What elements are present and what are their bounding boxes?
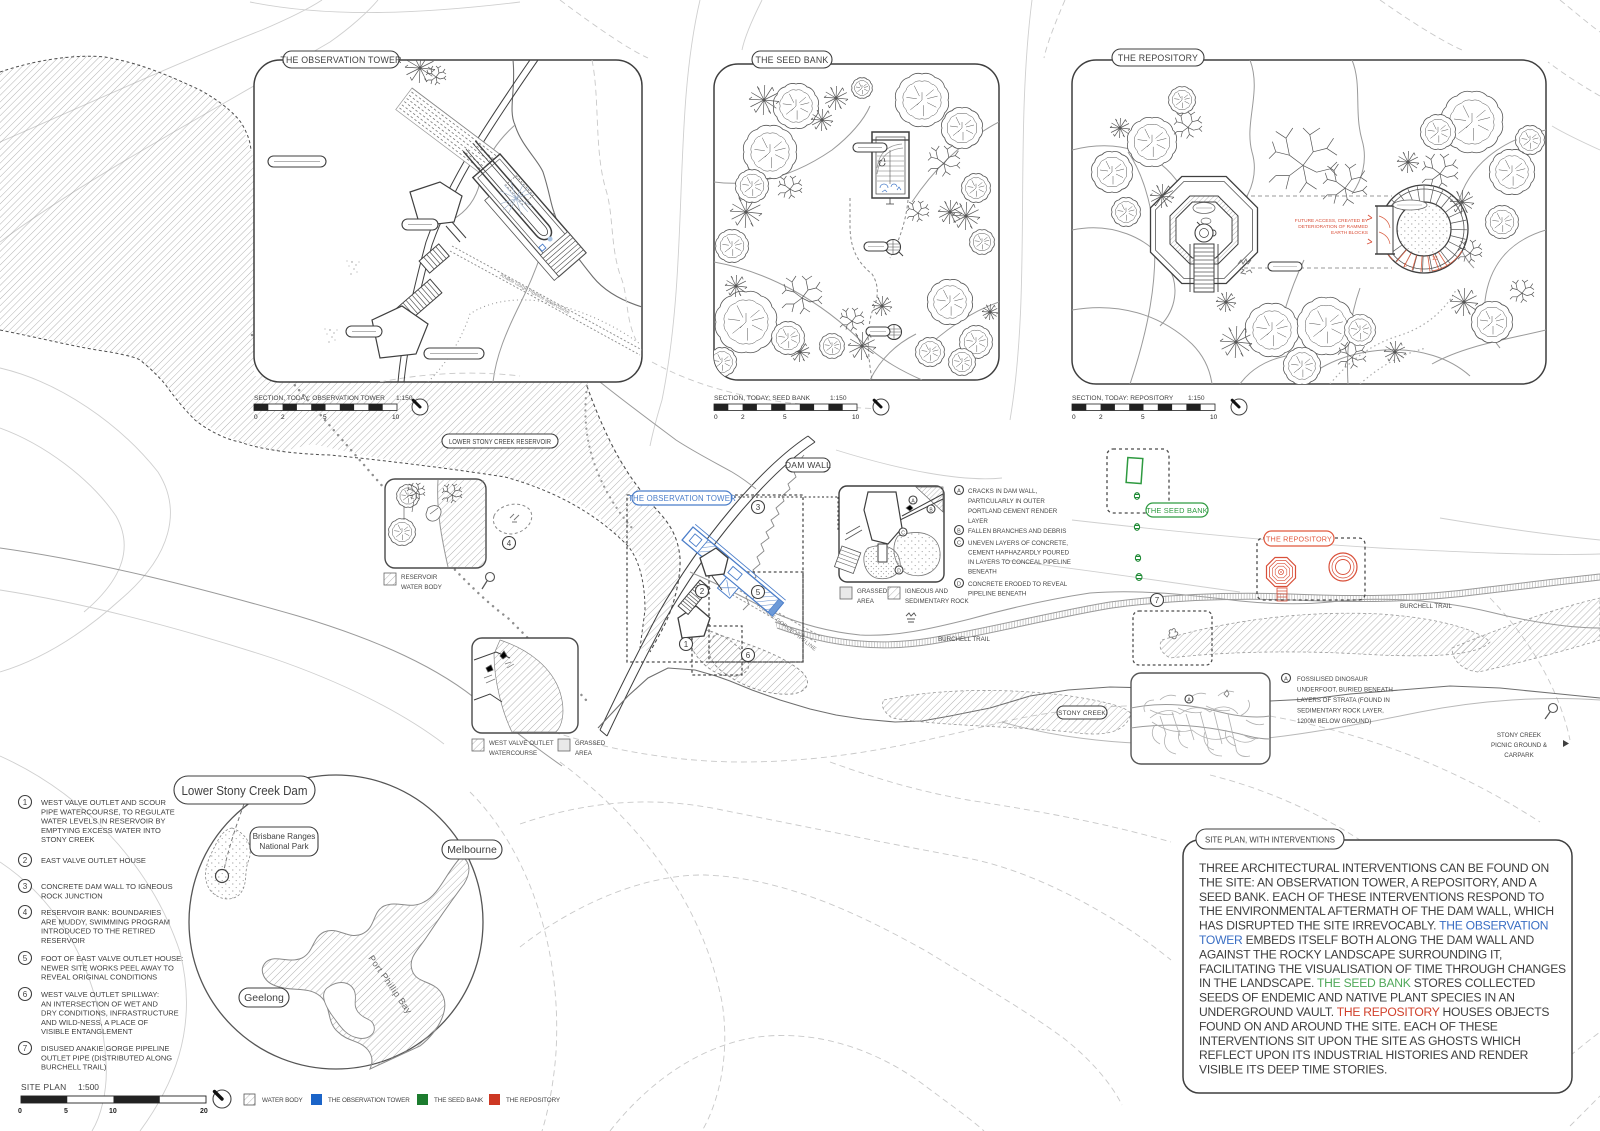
svg-text:PIPELINE BENEATH: PIPELINE BENEATH: [968, 591, 1026, 598]
svg-text:EAST VALVE OUTLET HOUSE: EAST VALVE OUTLET HOUSE: [41, 856, 146, 865]
svg-text:WATER BODY: WATER BODY: [401, 584, 442, 591]
svg-text:UNEVEN LAYERS OF CONCRETE,: UNEVEN LAYERS OF CONCRETE,: [968, 540, 1068, 547]
svg-text:1: 1: [684, 640, 689, 649]
svg-text:2: 2: [700, 587, 705, 596]
svg-text:LAYER: LAYER: [968, 518, 988, 525]
svg-text:20: 20: [200, 1108, 208, 1115]
svg-text:THREE ARCHITECTURAL INTERVENTI: THREE ARCHITECTURAL INTERVENTIONS CAN BE…: [1199, 861, 1549, 875]
svg-text:National Park: National Park: [259, 842, 309, 851]
svg-text:THE OBSERVATION TOWER: THE OBSERVATION TOWER: [628, 494, 736, 503]
svg-text:5: 5: [783, 414, 787, 421]
svg-text:TOWER EMBEDS ITSELF BOTH ALON: TOWER EMBEDS ITSELF BOTH ALONG THE DAM W…: [1199, 933, 1535, 947]
svg-text:GRASSED: GRASSED: [575, 740, 606, 747]
svg-text:THE REPOSITORY: THE REPOSITORY: [1266, 535, 1332, 544]
svg-text:5: 5: [23, 954, 28, 963]
svg-text:GRASSED: GRASSED: [857, 588, 888, 595]
svg-text:Melbourne: Melbourne: [447, 844, 497, 856]
svg-text:A: A: [1284, 677, 1288, 683]
svg-text:10: 10: [1210, 414, 1218, 421]
svg-text:FOOT OF EAST VALVE OUTLET HOUS: FOOT OF EAST VALVE OUTLET HOUSE:: [41, 954, 183, 963]
svg-text:AND WILD-NESS, A PLACE OF: AND WILD-NESS, A PLACE OF: [41, 1018, 149, 1027]
svg-text:REFLECT UPON ITS INDUSTRIAL HI: REFLECT UPON ITS INDUSTRIAL HISTORIES AN…: [1199, 1048, 1529, 1062]
svg-text:FACILITATING THE VISUALISATION: FACILITATING THE VISUALISATION OF TIME T…: [1199, 962, 1566, 976]
svg-text:C: C: [957, 541, 961, 547]
svg-text:5: 5: [323, 414, 327, 421]
svg-text:BENEATH: BENEATH: [968, 569, 997, 576]
svg-text:AN INTERSECTION OF WET AND: AN INTERSECTION OF WET AND: [41, 999, 159, 1008]
svg-text:DAM WALL: DAM WALL: [785, 460, 831, 470]
svg-text:PICNIC GROUND &: PICNIC GROUND &: [1491, 742, 1548, 749]
svg-text:3: 3: [23, 882, 28, 891]
svg-text:WEST VALVE OUTLET SPILLWAY:: WEST VALVE OUTLET SPILLWAY:: [41, 990, 159, 999]
svg-text:UNDERFOOT, BURIED BENEATH: UNDERFOOT, BURIED BENEATH: [1297, 687, 1393, 694]
svg-text:5: 5: [1141, 414, 1145, 421]
svg-text:5: 5: [756, 588, 761, 597]
svg-text:SECTION, TODAY: OBSERVATION TO: SECTION, TODAY: OBSERVATION TOWER: [254, 395, 385, 402]
svg-text:2: 2: [1099, 414, 1103, 421]
svg-text:1:150: 1:150: [830, 395, 847, 402]
svg-text:BURCHELL TRAIL: BURCHELL TRAIL: [938, 636, 990, 643]
svg-text:REVEAL ORIGINAL CONDITIONS: REVEAL ORIGINAL CONDITIONS: [41, 973, 157, 982]
svg-text:0: 0: [254, 414, 258, 421]
svg-text:PARTICULARLY IN OUTER: PARTICULARLY IN OUTER: [968, 498, 1045, 505]
svg-text:AREA: AREA: [575, 750, 593, 757]
svg-text:BURCHELL TRAIL: BURCHELL TRAIL: [1400, 603, 1452, 610]
svg-text:BURCHELL TRAIL): BURCHELL TRAIL): [41, 1063, 107, 1072]
svg-text:SECTION, TODAY: SEED BANK: SECTION, TODAY: SEED BANK: [714, 395, 811, 402]
svg-text:5: 5: [64, 1108, 68, 1115]
svg-text:10: 10: [392, 414, 400, 421]
svg-text:DISUSED ANAKIE GORGE PIPELINE: DISUSED ANAKIE GORGE PIPELINE: [41, 1044, 169, 1053]
svg-text:RESERVOIR: RESERVOIR: [401, 574, 438, 581]
svg-text:SEDIMENTARY ROCK LAYER,: SEDIMENTARY ROCK LAYER,: [1297, 708, 1384, 715]
svg-text:6: 6: [23, 990, 28, 999]
svg-text:B: B: [957, 529, 961, 535]
svg-text:Geelong: Geelong: [244, 992, 284, 1004]
svg-text:6: 6: [746, 651, 751, 660]
svg-text:EMPTYING EXCESS WATER INTO: EMPTYING EXCESS WATER INTO: [41, 826, 161, 835]
svg-text:0: 0: [18, 1108, 22, 1115]
svg-text:10: 10: [109, 1108, 117, 1115]
svg-text:UNDERGROUND VAULT. THE REPOSIT: UNDERGROUND VAULT. THE REPOSITORY HOUSES…: [1199, 1005, 1549, 1019]
svg-text:NEWER SITE WORKS PEEL AWAY TO: NEWER SITE WORKS PEEL AWAY TO: [41, 963, 174, 972]
svg-text:CONCRETE DAM WALL TO IGNEOUS: CONCRETE DAM WALL TO IGNEOUS: [41, 882, 173, 891]
svg-text:LAYERS OF STRATA (FOUND IN: LAYERS OF STRATA (FOUND IN: [1297, 697, 1390, 704]
svg-text:IN THE LANDSCAPE. THE SEED BAN: IN THE LANDSCAPE. THE SEED BANK STORES C…: [1199, 976, 1536, 990]
svg-text:IN LAYERS TO CONCEAL PIPELINE: IN LAYERS TO CONCEAL PIPELINE: [968, 559, 1071, 566]
svg-text:3: 3: [756, 503, 761, 512]
svg-text:LOWER STONY CREEK RESERVOIR: LOWER STONY CREEK RESERVOIR: [449, 439, 551, 446]
svg-text:THE OBSERVATION TOWER: THE OBSERVATION TOWER: [280, 55, 401, 65]
svg-text:THE SEED BANK: THE SEED BANK: [434, 1097, 484, 1104]
svg-text:A: A: [957, 489, 961, 495]
svg-text:0: 0: [1072, 414, 1076, 421]
svg-text:1200M BELOW GROUND): 1200M BELOW GROUND): [1297, 718, 1371, 725]
svg-text:STONY CREEK: STONY CREEK: [41, 835, 95, 844]
svg-text:Lower Stony Creek Dam: Lower Stony Creek Dam: [182, 783, 308, 798]
svg-text:STONY CREEK: STONY CREEK: [1497, 732, 1542, 739]
svg-text:D: D: [957, 582, 961, 588]
svg-text:7: 7: [23, 1044, 28, 1053]
svg-text:PORTLAND CEMENT RENDER: PORTLAND CEMENT RENDER: [968, 508, 1058, 515]
svg-text:WATER BODY: WATER BODY: [262, 1097, 304, 1104]
svg-text:FALLEN BRANCHES AND DEBRIS: FALLEN BRANCHES AND DEBRIS: [968, 528, 1066, 535]
svg-text:SEED BANK. EACH OF THESE INTER: SEED BANK. EACH OF THESE INTERVENTIONS R…: [1199, 890, 1544, 904]
svg-text:THE ENVIRONMENTAL AFTERMATH OF: THE ENVIRONMENTAL AFTERMATH OF THE DAM W…: [1199, 904, 1554, 918]
svg-text:SEEDS OF ENDEMIC AND NATIVE PL: SEEDS OF ENDEMIC AND NATIVE PLANT SPECIE…: [1199, 991, 1515, 1005]
svg-text:WEST VALVE OUTLET AND SCOUR: WEST VALVE OUTLET AND SCOUR: [41, 798, 166, 807]
svg-text:VISIBLE ITS DEEP TIME STORIES.: VISIBLE ITS DEEP TIME STORIES.: [1199, 1063, 1387, 1077]
svg-text:C: C: [901, 531, 905, 537]
svg-text:FOSSILISED DINOSAUR: FOSSILISED DINOSAUR: [1297, 676, 1368, 683]
svg-text:7: 7: [1155, 596, 1160, 605]
svg-text:1: 1: [23, 798, 28, 807]
svg-text:DETERIORATION OF RAMMED: DETERIORATION OF RAMMED: [1298, 224, 1368, 230]
svg-text:HAS DISRUPTED THE SITE IRREVOC: HAS DISRUPTED THE SITE IRREVOCABLY. THE …: [1199, 919, 1548, 933]
svg-text:1:500: 1:500: [78, 1082, 99, 1092]
svg-text:STONY CREEK: STONY CREEK: [1058, 710, 1106, 717]
svg-text:PIPE WATERCOURSE, TO REGULATE: PIPE WATERCOURSE, TO REGULATE: [41, 807, 175, 816]
svg-text:OUTLET PIPE (DISTRIBUTED ALONG: OUTLET PIPE (DISTRIBUTED ALONG: [41, 1053, 172, 1062]
svg-text:10: 10: [852, 414, 860, 421]
svg-text:INTERVENTIONS SIT UPON THE SIT: INTERVENTIONS SIT UPON THE SITE AS GHOST…: [1199, 1034, 1521, 1048]
svg-text:SECTION, TODAY: REPOSITORY: SECTION, TODAY: REPOSITORY: [1072, 395, 1174, 402]
svg-text:FUTURE ACCESS, CREATED BY: FUTURE ACCESS, CREATED BY: [1295, 218, 1369, 224]
svg-text:2: 2: [741, 414, 745, 421]
svg-text:AGAINST THE ROCKY LANDSCAPE SU: AGAINST THE ROCKY LANDSCAPE SURROUNDING …: [1199, 947, 1502, 961]
svg-text:Brisbane Ranges: Brisbane Ranges: [253, 832, 316, 841]
svg-text:SITE PLAN, WITH INTERVENTIONS: SITE PLAN, WITH INTERVENTIONS: [1205, 835, 1335, 845]
svg-text:THE SEED BANK: THE SEED BANK: [756, 55, 829, 65]
svg-text:EARTH BLOCKS: EARTH BLOCKS: [1331, 230, 1368, 236]
svg-text:DRY CONDITIONS, INFRASTRUCTURE: DRY CONDITIONS, INFRASTRUCTURE: [41, 1009, 179, 1018]
svg-text:RESERVOIR: RESERVOIR: [41, 936, 86, 945]
svg-text:1:150: 1:150: [1188, 395, 1205, 402]
svg-text:ROCK JUNCTION: ROCK JUNCTION: [41, 891, 103, 900]
svg-text:0: 0: [714, 414, 718, 421]
svg-text:INTRODUCED TO THE RETIRED: INTRODUCED TO THE RETIRED: [41, 927, 156, 936]
svg-text:WATER LEVELS IN RESERVOIR BY: WATER LEVELS IN RESERVOIR BY: [41, 817, 165, 826]
svg-text:WEST VALVE OUTLET: WEST VALVE OUTLET: [489, 740, 554, 747]
svg-text:1:150: 1:150: [396, 395, 413, 402]
svg-text:4: 4: [23, 908, 28, 917]
svg-text:SEDIMENTARY ROCK: SEDIMENTARY ROCK: [905, 598, 969, 605]
svg-text:THE OBSERVATION TOWER: THE OBSERVATION TOWER: [328, 1097, 410, 1104]
svg-text:THE SEED BANK: THE SEED BANK: [1146, 506, 1208, 515]
svg-text:VISIBLE ENTANGLEMENT: VISIBLE ENTANGLEMENT: [41, 1027, 133, 1036]
svg-text:THE SITE: AN OBSERVATION TOWER: THE SITE: AN OBSERVATION TOWER, A REPOSI…: [1199, 875, 1538, 889]
svg-text:CEMENT HAPHAZARDLY POURED: CEMENT HAPHAZARDLY POURED: [968, 550, 1070, 557]
svg-text:AREA: AREA: [857, 598, 875, 605]
svg-text:CARPARK: CARPARK: [1504, 752, 1534, 759]
svg-text:FOUND ON AND AROUND THE SITE.: FOUND ON AND AROUND THE SITE. EACH OF TH…: [1199, 1019, 1498, 1033]
svg-text:D: D: [897, 569, 901, 575]
svg-text:ARE MUDDY, SWIMMING PROGRAM: ARE MUDDY, SWIMMING PROGRAM: [41, 917, 170, 926]
svg-text:2: 2: [23, 856, 28, 865]
svg-text:WATERCOURSE: WATERCOURSE: [489, 750, 537, 757]
svg-text:5: 5: [1404, 263, 1407, 269]
svg-text:CRACKS IN DAM WALL,: CRACKS IN DAM WALL,: [968, 488, 1038, 495]
svg-text:RESERVOIR BANK: BOUNDARIES: RESERVOIR BANK: BOUNDARIES: [41, 908, 161, 917]
svg-text:THE REPOSITORY: THE REPOSITORY: [506, 1097, 561, 1104]
svg-text:CONCRETE ERODED TO REVEAL: CONCRETE ERODED TO REVEAL: [968, 581, 1068, 588]
svg-text:IGNEOUS AND: IGNEOUS AND: [905, 588, 949, 595]
svg-text:SITE PLAN: SITE PLAN: [21, 1082, 67, 1092]
svg-text:13: 13: [1432, 256, 1438, 262]
svg-text:4: 4: [507, 539, 512, 548]
svg-text:2: 2: [281, 414, 285, 421]
svg-text:THE REPOSITORY: THE REPOSITORY: [1118, 53, 1198, 63]
